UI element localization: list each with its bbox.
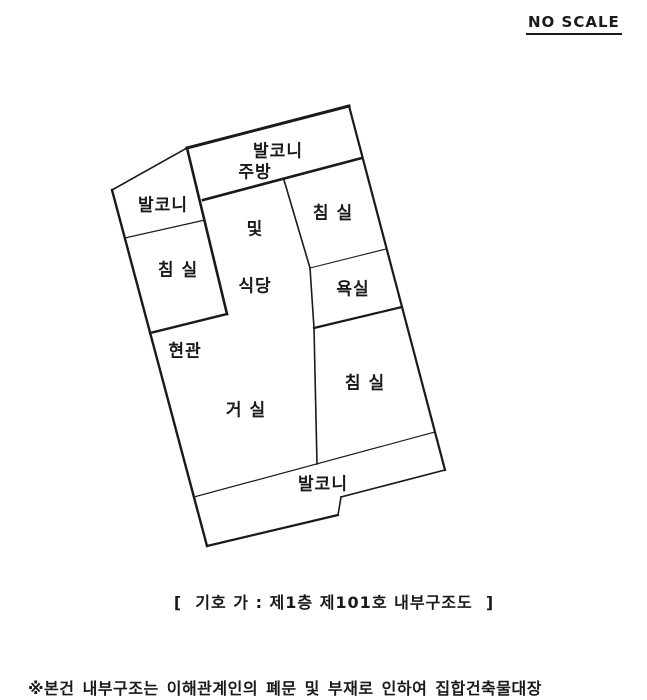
outer-wall-bottom-left xyxy=(207,515,338,546)
wall-living-bedroom-divider xyxy=(314,328,317,464)
footnote-line1: ※본건 내부구조는 이해관계인의 폐문 및 부재로 인하여 집합건축물대장 xyxy=(8,678,640,700)
wall-left-bedroom-bottom xyxy=(150,314,227,333)
wall-kitchen-left xyxy=(187,148,227,314)
room-label-kitchen-dining: 주방 및 식당 xyxy=(238,126,271,335)
wall-bathroom-top xyxy=(310,249,386,268)
drawing-caption: [ 기호 가 : 제1층 제101호 내부구조도 ] xyxy=(174,589,494,613)
wall-left-balcony-bottom xyxy=(125,220,205,238)
wall-top-balcony-bottom xyxy=(203,158,362,200)
floor-plan-document-page: NO SCALE 발코니 발코니 침 실 주방 및 식당 침 실 욕실 현관 거… xyxy=(0,0,647,700)
outer-wall-bottom-right xyxy=(341,470,445,497)
room-label-bedroom-left: 침 실 xyxy=(158,262,198,281)
footnote: ※본건 내부구조는 이해관계인의 폐문 및 부재로 인하여 집합건축물대장 건축… xyxy=(8,634,640,700)
room-label-living-room: 거 실 xyxy=(226,402,266,421)
outer-wall-step xyxy=(338,497,341,515)
outer-wall-left-column-top xyxy=(112,148,187,190)
room-label-balcony-left: 발코니 xyxy=(138,197,188,216)
room-label-bedroom-top-right: 침 실 xyxy=(313,205,353,224)
room-label-entrance: 현관 xyxy=(168,343,201,362)
room-label-bedroom-bottom-right: 침 실 xyxy=(345,375,385,394)
wall-bathroom-bottom xyxy=(314,307,402,328)
room-label-bathroom: 욕실 xyxy=(336,281,369,300)
kitchen-label-line1: 주방 xyxy=(238,164,271,183)
room-label-balcony-bottom: 발코니 xyxy=(298,476,348,495)
kitchen-label-line3: 식당 xyxy=(238,278,271,297)
wall-bathroom-left xyxy=(310,268,314,328)
wall-kitchen-bedroom-divider xyxy=(284,180,310,268)
kitchen-label-line2: 및 xyxy=(238,221,271,240)
outer-wall-left xyxy=(112,190,207,546)
